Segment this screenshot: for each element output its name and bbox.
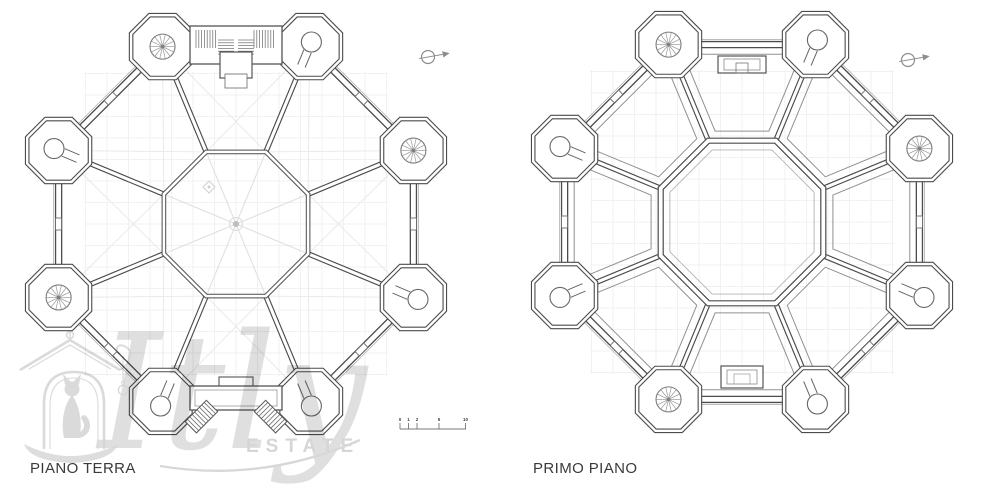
south-portal bbox=[721, 366, 763, 388]
construction-grid bbox=[590, 70, 894, 374]
scale-tick-label: 5 bbox=[438, 417, 441, 422]
tower-4 bbox=[533, 264, 596, 327]
scale-tick-label: 0 bbox=[399, 417, 402, 422]
spiral-stair-icon bbox=[401, 138, 426, 163]
tower-3 bbox=[27, 119, 90, 182]
spiral-stair-icon bbox=[656, 387, 681, 412]
tower-1 bbox=[278, 15, 341, 78]
floor-plan-piano-terra bbox=[27, 15, 451, 433]
north-balcony bbox=[718, 56, 766, 73]
scale-bar: 012510 bbox=[399, 417, 469, 429]
pavement-rosette bbox=[203, 181, 215, 193]
tower-3 bbox=[533, 117, 596, 180]
spiral-stair-icon bbox=[656, 32, 681, 57]
tower-1 bbox=[784, 13, 847, 76]
tower-0 bbox=[382, 119, 445, 182]
floor-plan-sheet: 012510 Itly ESTATE PIANO TERRA bbox=[0, 0, 1000, 496]
scale-tick-label: 2 bbox=[416, 417, 419, 422]
tower-6 bbox=[278, 370, 341, 433]
floor-plan-primo-piano bbox=[533, 13, 951, 431]
tower-4 bbox=[27, 266, 90, 329]
tower-6 bbox=[784, 368, 847, 431]
courtyard-center-well bbox=[233, 221, 239, 227]
tower-7 bbox=[888, 264, 951, 327]
tower-7 bbox=[382, 266, 445, 329]
tower-2 bbox=[637, 13, 700, 76]
tower-5 bbox=[131, 370, 194, 433]
main-entrance-stairs bbox=[185, 377, 287, 433]
tower-2 bbox=[131, 15, 194, 78]
spiral-stair-icon bbox=[46, 285, 71, 310]
floor-label-piano-terra: PIANO TERRA bbox=[30, 460, 136, 477]
north-arrow-icon bbox=[898, 50, 931, 68]
floor-label-primo-piano: PRIMO PIANO bbox=[533, 460, 637, 477]
scale-tick-label: 10 bbox=[463, 417, 469, 422]
north-forecourt-stairs bbox=[190, 26, 282, 88]
tower-0 bbox=[888, 117, 951, 180]
tower-5 bbox=[637, 368, 700, 431]
spiral-stair-icon bbox=[150, 34, 175, 59]
scale-tick-label: 1 bbox=[407, 417, 410, 422]
floor-plans-canvas: 012510 bbox=[0, 0, 1000, 496]
north-arrow-icon bbox=[418, 47, 451, 65]
spiral-stair-icon bbox=[907, 136, 932, 161]
